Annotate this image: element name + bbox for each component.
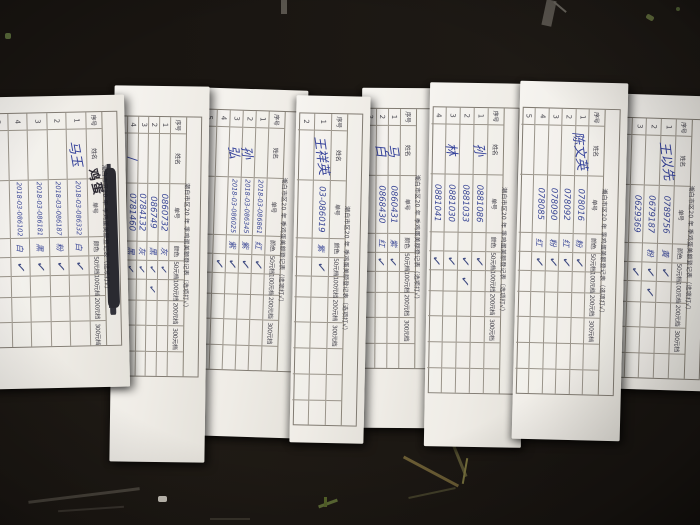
header-cell-2: 单号 (266, 179, 283, 237)
twig-bottom-right-3 (408, 487, 455, 499)
row-number: 1 (67, 112, 86, 129)
row-number-text: 2 (378, 115, 386, 120)
tier100-check-cell (238, 274, 251, 295)
serial-number-cell: 0881041 (430, 174, 445, 232)
header-cell-4: 50元档 (265, 255, 281, 274)
column-label: 单号 (333, 204, 342, 215)
header-cell-6: 200元档 (168, 301, 183, 326)
header-cell-7: 300元档 (168, 326, 183, 352)
column-label: 200元档 (488, 293, 497, 315)
extra-cell-0 (311, 323, 327, 349)
tier50-check-cell: ✓ (158, 261, 168, 280)
serial-number-cell-text: 0868430 (377, 185, 387, 223)
tier50-check-cell: ✓ (70, 256, 89, 275)
tier50-check-cell: ✓ (444, 251, 457, 270)
tier50-check-cell: ✓ (572, 253, 585, 272)
paper-form-a: 潮白市区20 年 季鸡蛋美额登记表（选项打√）鸡蛋序号姓名单号颜色50元档100… (0, 95, 130, 390)
serial-number-cell-text: 0881086 (474, 185, 485, 223)
tier100-check-cell: ✓ (147, 280, 157, 301)
tier50-check-cell: ✓ (559, 253, 572, 272)
row-number: 3 (632, 118, 646, 135)
tier100-check-cell: ✓ (642, 281, 656, 302)
serial-number-cell (296, 180, 314, 238)
column-label: 50元档 (489, 252, 498, 270)
tier50-check-cell: ✓ (388, 253, 399, 272)
header-cell-7: 300元档 (399, 318, 414, 344)
column-label: 100元档 (588, 272, 598, 294)
color-cell (518, 233, 532, 252)
serial-number-cell (519, 175, 534, 233)
tier200-cell (237, 295, 250, 320)
column-label: 序号 (679, 122, 688, 133)
tier200-cell (51, 297, 70, 322)
header-cell-3: 颜色 (486, 233, 501, 252)
row-number-text: 1 (161, 123, 169, 128)
row-number-text: 1 (390, 115, 398, 120)
row-number: 5 (0, 114, 7, 131)
moss-speck-top-left (5, 33, 11, 39)
tier100-check-cell-text: ✓ (145, 284, 160, 296)
serial-number-cell (214, 177, 228, 235)
column-label: 姓名 (174, 153, 183, 164)
serial-number-cell-text: 0881041 (432, 184, 443, 222)
color-cell (444, 232, 457, 251)
serial-number-cell: 0881086 (473, 175, 487, 233)
scratch-mid-bottom (210, 518, 250, 520)
tier100-check-cell (225, 273, 238, 294)
header-cell-3: 颜色 (89, 237, 104, 256)
column-label: 100元档 (489, 271, 498, 293)
color-cell: 紫 (313, 239, 329, 258)
extra-cell-2 (310, 375, 326, 401)
column-label: 序号 (335, 116, 344, 127)
serial-number-cell-text: 0784132 (137, 193, 148, 231)
row-number: 3 (230, 110, 243, 127)
tier50-check-cell-text: ✓ (374, 255, 390, 268)
tier200-cell (147, 301, 157, 326)
color-cell: 白 (11, 239, 30, 258)
column-label: 单号 (173, 207, 182, 218)
column-label: 单号 (677, 209, 686, 220)
extra-cell-0 (571, 318, 584, 344)
tier50-check-cell (295, 257, 312, 276)
header-cell-6: 200元档 (328, 298, 344, 323)
color-cell-text: 白 (14, 244, 25, 252)
column-label: 颜色 (332, 242, 341, 253)
tier100-check-cell (51, 276, 70, 297)
header-cell-3: 颜色 (586, 234, 601, 253)
tier200-cell (12, 298, 31, 323)
name-cell: 马玉 (67, 129, 87, 179)
tier50-check-cell: ✓ (472, 252, 485, 271)
name-cell: 白 (377, 126, 388, 176)
color-cell-text: 白 (73, 242, 84, 250)
column-label: 姓名 (334, 150, 343, 161)
header-cell-6: 200元档 (585, 293, 601, 318)
name-cell: 孙 (474, 125, 488, 175)
tier50-check-cell: ✓ (458, 252, 471, 271)
name-cell (548, 125, 562, 175)
name-cell (0, 131, 8, 181)
extra-cell-1 (543, 343, 556, 369)
header-cell-6: 200元档 (670, 303, 686, 328)
column-label: 200元档 (673, 305, 683, 327)
name-cell (149, 134, 159, 184)
serial-number-cell-text: 078090 (548, 188, 559, 221)
color-cell-text: 粉 (644, 248, 655, 256)
column-label: 50元档 (92, 256, 101, 274)
header-cell-5: 100元档 (486, 271, 501, 292)
column-label: 颜色 (489, 237, 498, 248)
extra-cell-1 (310, 349, 326, 375)
color-cell: 紫 (388, 234, 399, 253)
row-number-text: 1 (258, 117, 266, 122)
header-cell-8 (168, 352, 183, 378)
tier50-check-cell: ✓ (239, 255, 252, 274)
color-cell: 黑 (148, 242, 158, 261)
tier200-cell (558, 293, 571, 318)
name-cell (8, 131, 28, 181)
color-cell: 粉 (573, 234, 586, 253)
color-cell: 黑 (30, 238, 49, 257)
extra-cell-0 (12, 323, 31, 349)
tier200-cell (428, 291, 442, 316)
tier200-cell (311, 298, 327, 323)
serial-number-cell: 2018-03-086187 (49, 180, 69, 238)
color-cell-text: 灰 (158, 247, 169, 255)
name-cell (297, 130, 315, 180)
header-cell-4: 50元档 (400, 253, 415, 272)
serial-number-cell: 2018-03-086345 (240, 178, 254, 236)
serial-number-cell-text: 2018-03-086102 (15, 182, 24, 236)
row-number: 1 (315, 114, 331, 131)
header-cell-7: 300元档 (262, 320, 278, 346)
row-number-text: 3 (232, 116, 240, 121)
paper-form-f: 潮白市区20 年 季鸡蛋美额登记表（选项打√）序号姓名单号颜色50元档100元档… (424, 82, 527, 448)
name-cell (216, 127, 230, 177)
tier100-check-cell (0, 277, 11, 298)
color-cell-text: 黑 (34, 243, 45, 251)
color-cell: 红 (376, 234, 387, 253)
extra-cell-2 (456, 369, 469, 395)
tier100-check-cell (444, 270, 457, 291)
serial-number-cell: 0881030 (445, 174, 459, 232)
header-cell-0: 序号 (676, 119, 692, 136)
name-cell-text: 马玉 (65, 140, 88, 169)
extra-cell-1 (654, 354, 669, 380)
color-cell (295, 238, 312, 257)
name-cell: 林 (446, 124, 460, 174)
column-label: 颜色 (92, 240, 101, 251)
column-label: 单号 (490, 198, 499, 209)
scratch-bottom-left-2 (58, 506, 124, 513)
header-cell-0: 序号 (86, 112, 101, 129)
row-number-text: 4 (538, 114, 546, 119)
color-cell (0, 239, 10, 258)
header-cell-8 (669, 354, 685, 380)
extra-cell-2 (515, 369, 529, 395)
column-label: 300元档 (402, 320, 411, 342)
tier200-cell (544, 292, 557, 317)
color-cell: 紫 (226, 235, 239, 254)
color-cell-text: 粉 (574, 239, 585, 247)
row-number: 4 (8, 114, 27, 131)
extra-cell-0 (544, 317, 557, 343)
serial-number-cell-text: 2018-03-086332 (73, 181, 82, 235)
extra-cell-2 (529, 369, 542, 395)
serial-number-cell: 0881033 (459, 175, 473, 233)
serial-number-cell: 0868430 (376, 176, 387, 234)
serial-number-cell-text: 0881033 (460, 184, 471, 222)
color-cell-text: 黄 (659, 249, 670, 257)
row-number: 4 (431, 107, 445, 124)
header-cell-4: 50元档 (672, 263, 688, 282)
row-number-text: 1 (319, 120, 327, 125)
color-cell: 红 (252, 236, 265, 255)
column-label: 颜色 (172, 246, 181, 257)
row-number: 5 (521, 108, 535, 125)
extra-cell-0 (387, 318, 398, 344)
tier100-check-cell (656, 282, 670, 303)
sliver-top (281, 0, 287, 14)
color-cell: 白 (69, 237, 88, 256)
registration-form-f: 潮白市区20 年 季鸡蛋美额登记表（选项打√）序号姓名单号颜色50元档100元档… (428, 106, 520, 394)
column-label: 100元档 (172, 279, 181, 301)
moss-speck-top-right (645, 13, 654, 21)
header-cell-0: 序号 (171, 117, 186, 134)
extra-cell-1 (427, 342, 441, 368)
color-cell-text: 红 (376, 239, 387, 247)
header-cell-7: 300元档 (327, 323, 343, 349)
extra-cell-1 (456, 343, 469, 369)
header-cell-0: 序号 (332, 114, 347, 131)
color-cell (472, 233, 485, 252)
row-number-text: 2 (245, 117, 253, 122)
name-cell (561, 126, 575, 176)
header-cell-10 (326, 401, 342, 427)
serial-number-cell-text: 0860732 (159, 194, 170, 232)
tier50-check-cell: ✓ (226, 254, 239, 273)
name-cell (159, 134, 169, 184)
column-label: 姓名 (491, 144, 500, 155)
header-cell-9 (583, 370, 599, 396)
tier50-check-cell: ✓ (312, 258, 328, 277)
header-cell-4: 50元档 (486, 252, 501, 271)
name-cell-text: 孙 (470, 142, 491, 158)
tier50-check-cell: ✓ (376, 253, 387, 272)
extra-cell-2 (470, 369, 483, 395)
header-cell-5: 100元档 (90, 275, 105, 296)
tier50-check-cell: ✓ (532, 252, 545, 271)
color-cell: 粉 (546, 233, 559, 252)
extra-cell-1 (223, 345, 236, 371)
serial-number-cell-text: 03-086019 (316, 186, 327, 233)
serial-number-cell: 03-086019 (313, 181, 330, 239)
tier100-check-cell (388, 272, 399, 293)
tier200-cell (157, 301, 167, 326)
row-number: 2 (298, 113, 315, 130)
header-cell-2: 单号 (673, 186, 690, 244)
column-label: 200元档 (171, 302, 180, 324)
tier200-cell (136, 301, 146, 326)
extra-cell-1 (135, 352, 145, 378)
sprig-bottom-center (318, 499, 338, 509)
column-label: 300元档 (587, 320, 597, 342)
color-cell: 灰 (158, 242, 168, 261)
header-cell-4: 50元档 (329, 258, 344, 277)
paper-form-g: 潮白市区20 年 季鸡蛋美额登记表（选项打√）序号姓名单号颜色50元档100元档… (512, 81, 629, 442)
extra-cell-0 (210, 319, 223, 345)
extra-cell-0 (146, 326, 156, 352)
header-cell-8 (484, 343, 499, 369)
tier50-check-cell-text: ✓ (12, 260, 29, 274)
column-label: 200元档 (93, 297, 102, 319)
serial-number-cell-text: 2018-03-086025 (229, 179, 239, 234)
row-number-text: 4 (219, 116, 227, 121)
column-label: 姓名 (678, 155, 687, 166)
tier100-check-cell (136, 280, 146, 301)
serial-number-cell: 2018-03-086181 (29, 180, 49, 238)
header-cell-4: 50元档 (586, 253, 601, 272)
extra-cell-1 (249, 346, 262, 372)
extra-cell-1 (442, 342, 455, 368)
column-label: 姓名 (404, 145, 413, 156)
tier100-check-cell (627, 281, 641, 302)
extra-cell-1 (470, 343, 483, 369)
row-number: 2 (647, 119, 661, 136)
serial-number-cell: 0629369 (629, 185, 645, 243)
serial-number-cell-text: 0881030 (446, 184, 457, 222)
row-number: 1 (662, 119, 676, 136)
extra-cell-1 (146, 352, 156, 378)
header-cell-7: 300元档 (584, 318, 600, 344)
tier50-check-cell-text: ✓ (210, 256, 227, 270)
column-label: 50元档 (268, 256, 278, 274)
column-label: 50元档 (589, 253, 598, 271)
column-label: 50元档 (403, 253, 412, 271)
extra-cell-0 (32, 322, 51, 348)
tier100-check-cell (572, 272, 585, 293)
tier200-cell (641, 302, 656, 327)
serial-number-cell: 0789756 (658, 186, 674, 244)
extra-cell-2 (569, 370, 582, 396)
column-label: 50元档 (172, 261, 181, 279)
column-label: 姓名 (592, 145, 601, 156)
column-label: 序号 (592, 112, 601, 123)
tier100-check-cell (158, 280, 168, 301)
row-number-text: 3 (449, 113, 457, 118)
header-cell-7: 300元档 (91, 321, 107, 347)
name-cell-text: 林 (442, 141, 463, 157)
tier50-check-cell: ✓ (657, 263, 671, 282)
serial-number-cell-text: 2018-03-086345 (242, 179, 252, 234)
extra-cell-0 (223, 319, 236, 345)
header-cell-1: 姓名 (331, 131, 347, 181)
extra-cell-0 (249, 320, 262, 346)
color-cell: 紫 (239, 236, 252, 255)
twig-bottom-right-1 (403, 456, 459, 488)
column-label: 单号 (270, 201, 279, 212)
tier50-check-cell: ✓ (252, 255, 265, 274)
serial-number-cell: 0784132 (137, 184, 148, 242)
tier100-check-cell (11, 277, 30, 298)
tier200-cell (626, 302, 641, 327)
tier200-cell (531, 292, 544, 317)
row-number: 1 (256, 111, 269, 128)
tier50-check-cell: ✓ (147, 261, 157, 280)
tier100-check-cell-text: ✓ (456, 274, 473, 288)
color-cell-text: 紫 (388, 239, 399, 247)
extra-cell-1 (557, 344, 570, 370)
tier100-check-cell (251, 274, 264, 295)
column-label: 序号 (492, 111, 501, 122)
tier100-check-cell-text: ✓ (640, 285, 657, 299)
serial-number-cell-text: 078085 (535, 187, 546, 220)
tier50-check-cell: ✓ (50, 257, 69, 276)
row-number: 2 (563, 109, 576, 126)
scratch-bottom-left (28, 487, 139, 503)
column-label: 单号 (91, 202, 100, 213)
tier50-check-cell-text: ✓ (32, 260, 49, 274)
row-number-text: 4 (13, 119, 21, 124)
tier100-check-cell (472, 271, 485, 292)
serial-number-cell-text: 0860431 (389, 185, 399, 223)
column-label: 300元档 (171, 328, 180, 350)
header-cell-2: 单号 (587, 176, 603, 234)
header-cell-9 (326, 375, 342, 401)
extra-cell-0 (471, 317, 484, 343)
extra-cell-2 (556, 370, 569, 396)
header-cell-0: 序号 (401, 109, 416, 126)
extra-cell-0 (457, 317, 470, 343)
tier100-check-cell (312, 277, 328, 298)
tier100-check-cell (429, 270, 443, 291)
color-cell: 红 (559, 234, 572, 253)
column-label: 姓名 (271, 148, 280, 159)
header-cell-8 (262, 346, 278, 372)
serial-number-cell-text: 0781460 (126, 193, 137, 231)
tier100-check-cell (532, 271, 545, 292)
header-cell-7: 300元档 (669, 328, 685, 354)
tier50-check-cell: ✓ (628, 262, 642, 281)
extra-cell-0 (51, 322, 70, 348)
serial-number-cell-text: 078092 (561, 188, 572, 221)
tier50-check-cell: ✓ (137, 261, 147, 280)
name-cell: 弘 (229, 127, 243, 177)
tier50-check-cell-text: ✓ (51, 259, 68, 273)
tier200-cell (457, 292, 470, 317)
color-cell: 粉 (643, 243, 657, 262)
row-number: 1 (576, 109, 589, 126)
serial-number-cell-text: 0789756 (660, 196, 671, 234)
tier200-cell (571, 293, 584, 318)
extra-cell-0 (136, 326, 146, 352)
header-cell-2: 单号 (487, 175, 503, 233)
column-label: 100元档 (93, 274, 102, 296)
color-cell: 黄 (658, 244, 672, 263)
color-cell-text: 粉 (547, 238, 558, 246)
header-cell-3: 颜色 (169, 242, 184, 261)
extra-cell-1 (210, 345, 223, 371)
header-cell-2: 单号 (169, 184, 185, 242)
row-number: 3 (446, 107, 459, 124)
extra-cell-1 (624, 353, 639, 379)
header-cell-3: 颜色 (265, 236, 281, 255)
row-number: 2 (460, 108, 473, 125)
row-number: 2 (149, 117, 159, 134)
tier50-check-cell-text: ✓ (71, 259, 88, 273)
name-cell (47, 130, 67, 180)
